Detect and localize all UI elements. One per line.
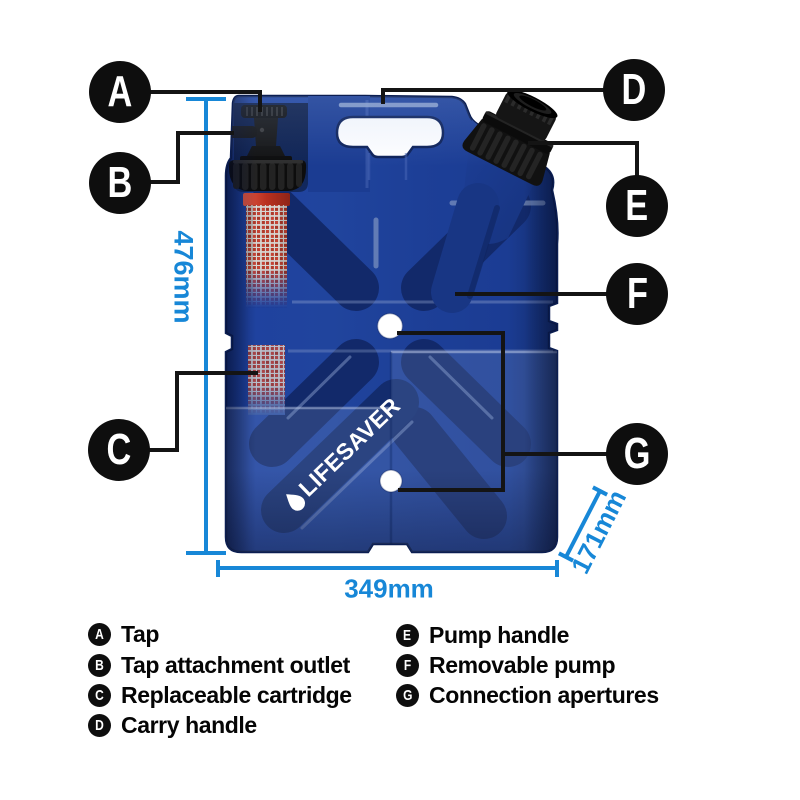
callout-b: B [89,152,151,214]
legend-badge-c: C [88,684,111,707]
legend-badge-b: B [88,654,111,677]
legend-badge-d: D [88,714,111,737]
legend-item-e: E Pump handle [396,622,569,648]
legend-badge-g: G [396,684,419,707]
legend-badge-e: E [396,624,419,647]
jerrycan-body: LIFESAVER [218,78,575,553]
legend-label-d: Carry handle [121,712,257,739]
legend-item-c: C Replaceable cartridge [88,682,352,708]
callout-d: D [603,59,665,121]
callout-f: F [606,263,668,325]
callout-g-letter: G [624,432,651,476]
legend-label-a: Tap [121,621,159,648]
legend-label-b: Tap attachment outlet [121,652,350,679]
figure-canvas: LIFESAVER [0,0,800,800]
legend-item-g: G Connection apertures [396,682,659,708]
legend-item-a: A Tap [88,621,159,647]
dimension-width-label: 349mm [344,574,434,605]
legend-label-c: Replaceable cartridge [121,682,352,709]
callout-e: E [606,175,668,237]
callout-g: G [606,423,668,485]
legend-badge-a: A [88,623,111,646]
callout-f-letter: F [627,272,648,316]
callout-c-letter: C [107,428,132,472]
connector-b [150,133,234,182]
legend-item-d: D Carry handle [88,712,257,738]
callout-c: C [88,419,150,481]
legend-item-f: F Removable pump [396,652,615,678]
legend-item-b: B Tap attachment outlet [88,652,350,678]
legend-label-f: Removable pump [429,652,615,679]
dimension-height-line [186,99,226,553]
legend-label-e: Pump handle [429,622,569,649]
callout-b-letter: B [108,161,133,205]
dimension-height-label: 476mm [168,230,199,323]
legend-label-g: Connection apertures [429,682,659,709]
legend-badge-f: F [396,654,419,677]
callout-e-letter: E [626,184,649,228]
callout-a-letter: A [108,70,133,114]
callout-a: A [89,61,151,123]
callout-d-letter: D [622,68,647,112]
